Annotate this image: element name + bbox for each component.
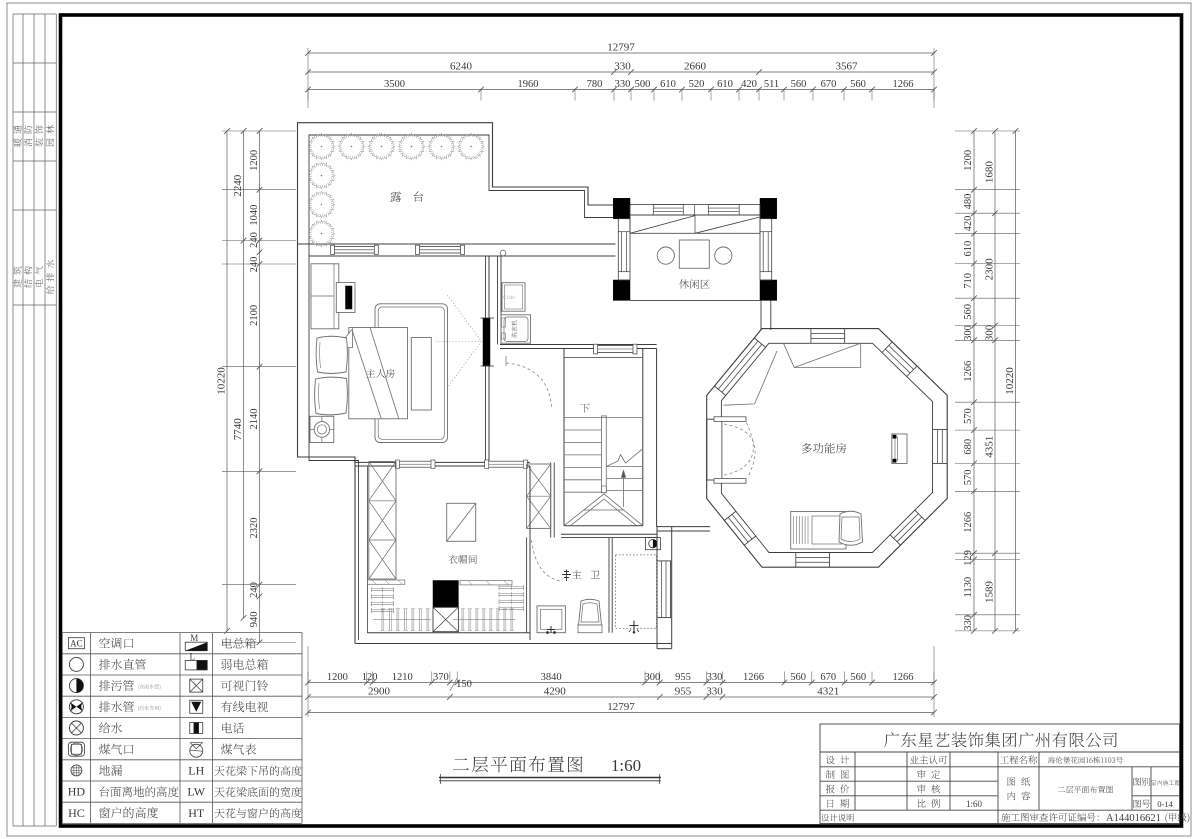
svg-text:4321: 4321: [817, 686, 839, 698]
svg-text:0-14: 0-14: [1157, 799, 1173, 809]
svg-text:511: 511: [764, 79, 779, 90]
svg-text:1266: 1266: [963, 512, 974, 533]
svg-text:330: 330: [963, 615, 974, 631]
svg-text:330: 330: [707, 672, 723, 683]
svg-text:2900: 2900: [368, 686, 391, 698]
svg-text:1200: 1200: [963, 150, 974, 171]
svg-text:1130: 1130: [963, 577, 974, 598]
svg-text:500: 500: [635, 79, 651, 90]
svg-text:1210: 1210: [392, 672, 413, 683]
svg-text:560: 560: [790, 672, 806, 683]
svg-text:129: 129: [963, 550, 974, 566]
svg-text:1266: 1266: [893, 672, 914, 683]
svg-text:300: 300: [963, 325, 974, 341]
svg-text:4351: 4351: [984, 436, 996, 458]
svg-text:560: 560: [963, 304, 974, 320]
svg-text:6240: 6240: [450, 61, 473, 73]
svg-text:HD: HD: [68, 785, 86, 799]
svg-text:420: 420: [963, 216, 974, 232]
svg-text:150: 150: [456, 679, 472, 690]
svg-text:LH: LH: [188, 763, 204, 777]
svg-text:710: 710: [963, 273, 974, 289]
svg-text:940: 940: [249, 612, 260, 628]
svg-text:2140: 2140: [249, 409, 260, 430]
svg-text:955: 955: [675, 672, 691, 683]
svg-text:1589: 1589: [984, 581, 996, 604]
svg-text:300: 300: [644, 672, 660, 683]
svg-text:LW: LW: [187, 785, 205, 799]
svg-text:2300: 2300: [984, 258, 996, 281]
svg-text:HC: HC: [68, 806, 85, 820]
svg-text:480: 480: [963, 194, 974, 210]
svg-text:955: 955: [675, 686, 692, 698]
svg-text:A144016621: A144016621: [1106, 813, 1161, 824]
svg-text:12797: 12797: [607, 701, 635, 713]
svg-text:2100: 2100: [249, 305, 260, 326]
svg-text:610: 610: [660, 79, 676, 90]
svg-text:680: 680: [963, 439, 974, 455]
svg-text:AC: AC: [70, 639, 83, 649]
svg-text:300: 300: [984, 324, 996, 341]
svg-text:330: 330: [615, 79, 631, 90]
svg-text:560: 560: [791, 79, 807, 90]
svg-text:370: 370: [433, 672, 449, 683]
svg-text:2660: 2660: [684, 61, 707, 73]
svg-text:570: 570: [963, 408, 974, 424]
svg-text:120: 120: [362, 672, 378, 683]
svg-text:1266: 1266: [893, 79, 914, 90]
svg-text:1:60: 1:60: [966, 799, 983, 809]
svg-text:560: 560: [850, 79, 866, 90]
svg-text:1680: 1680: [984, 161, 996, 184]
svg-text:520: 520: [689, 79, 705, 90]
svg-text:1200: 1200: [327, 672, 348, 683]
svg-text:420: 420: [741, 79, 757, 90]
svg-text:4290: 4290: [544, 686, 567, 698]
svg-text:610: 610: [717, 79, 733, 90]
svg-text:330: 330: [706, 686, 723, 698]
svg-text:1266: 1266: [963, 361, 974, 382]
svg-text:10220: 10220: [1004, 367, 1016, 395]
svg-text:560: 560: [850, 672, 866, 683]
svg-text:1:60: 1:60: [611, 756, 641, 775]
svg-text:12797: 12797: [607, 42, 635, 54]
svg-text:780: 780: [587, 79, 603, 90]
svg-text:1200: 1200: [249, 150, 260, 171]
svg-text:3500: 3500: [384, 79, 405, 90]
svg-text:570: 570: [963, 469, 974, 485]
svg-text:240: 240: [249, 232, 260, 248]
svg-text:7740: 7740: [232, 418, 244, 441]
svg-text:2320: 2320: [249, 518, 260, 539]
svg-text:2240: 2240: [232, 174, 244, 197]
svg-text:HT: HT: [188, 806, 205, 820]
svg-text:M: M: [190, 633, 198, 643]
svg-text:3840: 3840: [541, 672, 562, 683]
svg-text:670: 670: [820, 672, 836, 683]
svg-text:610: 610: [963, 241, 974, 257]
svg-text:240: 240: [249, 257, 260, 273]
svg-text:670: 670: [821, 79, 837, 90]
svg-text:1040: 1040: [249, 205, 260, 226]
svg-text:1960: 1960: [518, 79, 539, 90]
svg-text:3567: 3567: [836, 61, 859, 73]
svg-text:10220: 10220: [216, 367, 228, 395]
svg-text:1266: 1266: [743, 672, 764, 683]
svg-text:330: 330: [614, 61, 631, 73]
svg-text:L: L: [190, 651, 196, 661]
